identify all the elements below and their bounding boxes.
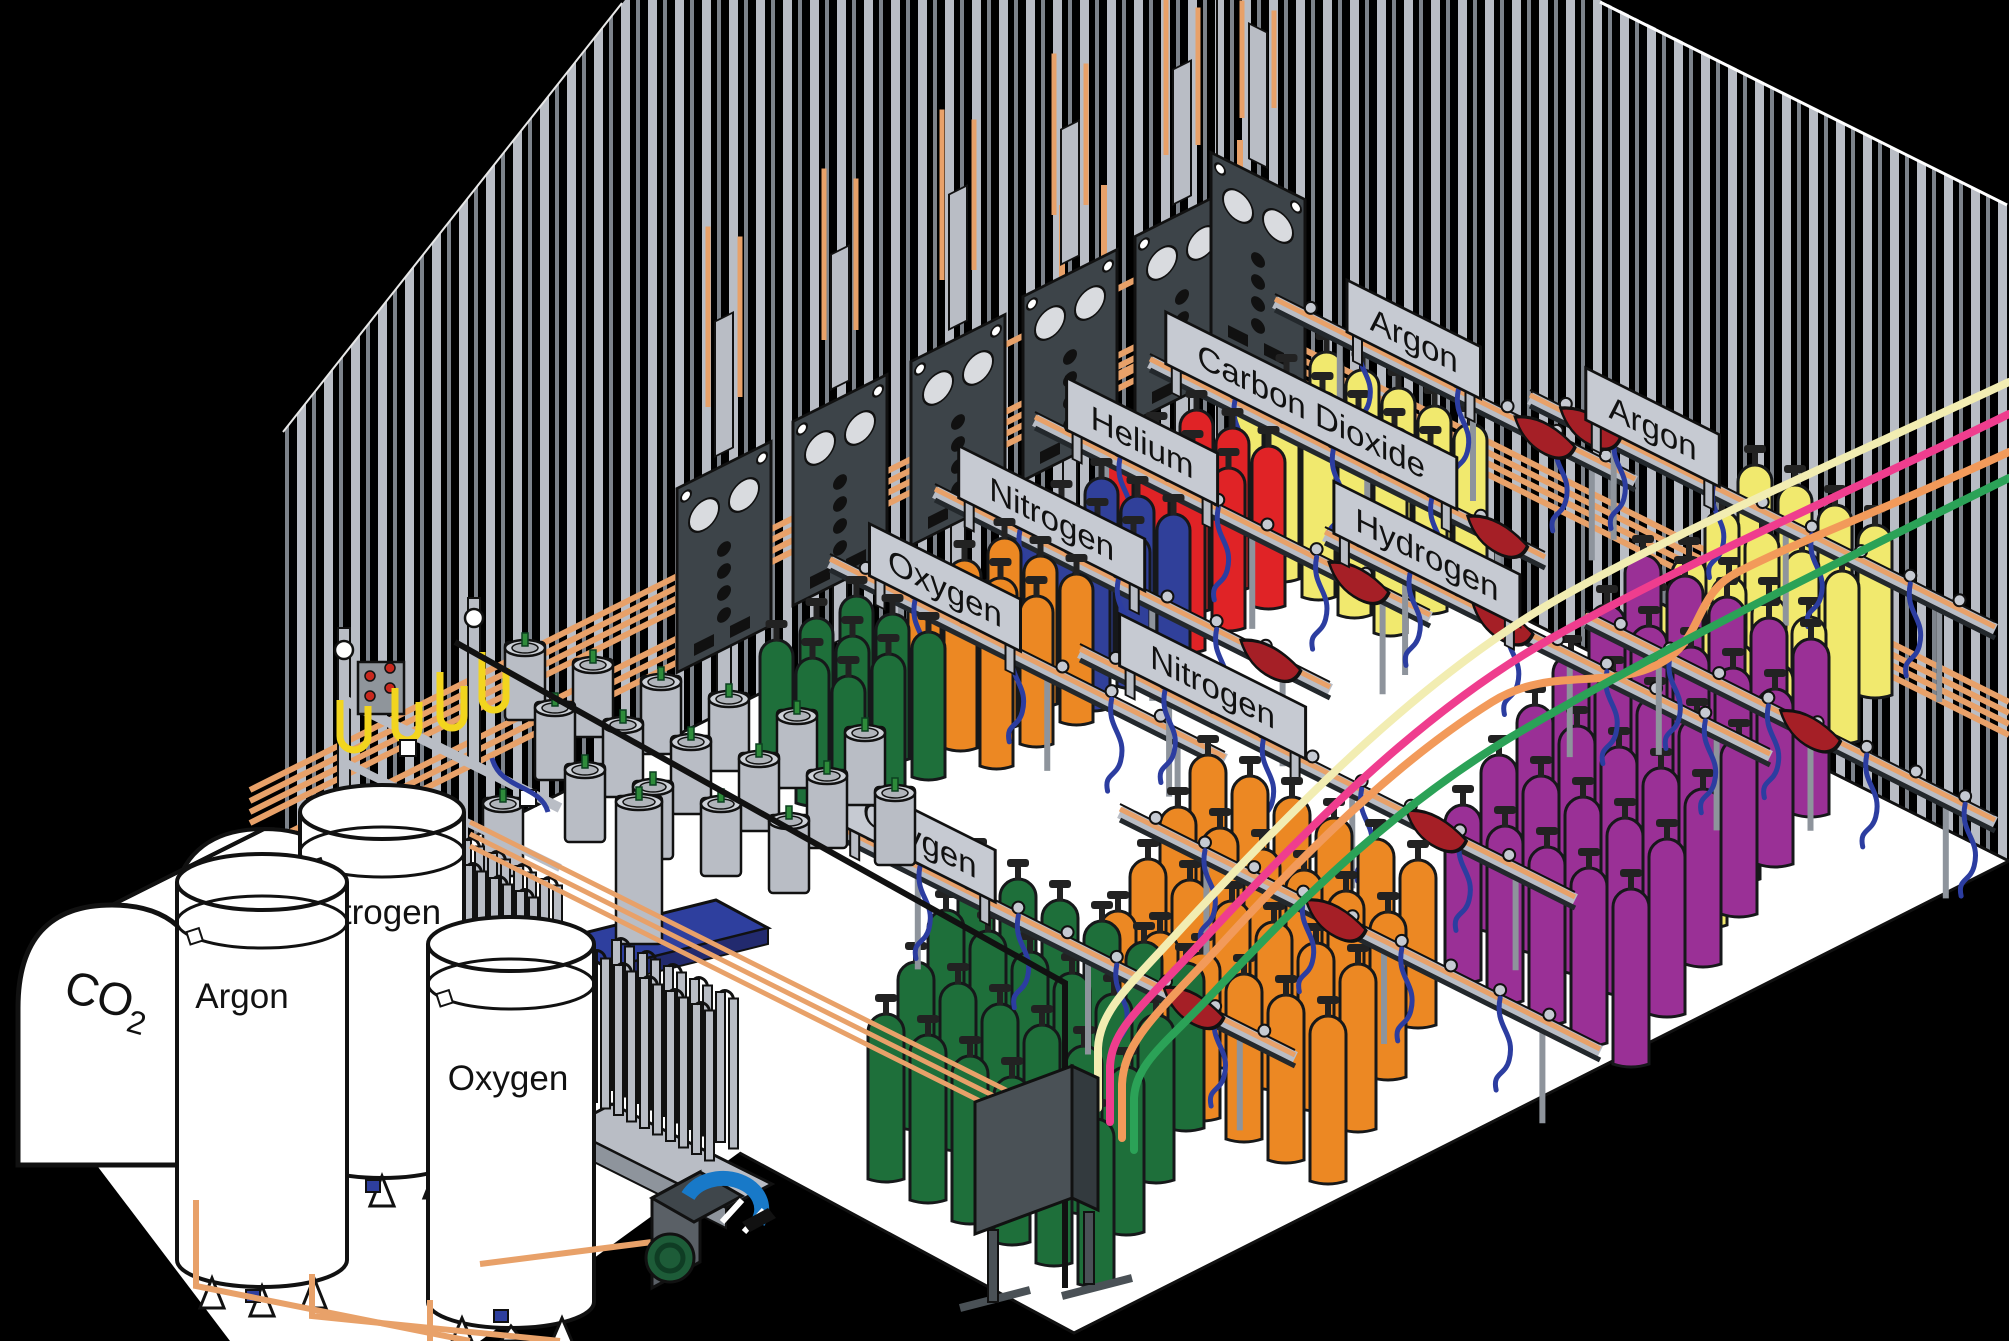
rail-hook bbox=[1713, 667, 1725, 679]
cylinder-valve bbox=[1115, 898, 1121, 912]
rail-hook bbox=[1111, 951, 1123, 963]
cylinder-valve bbox=[1686, 544, 1692, 558]
button bbox=[365, 691, 375, 701]
cylinder-valve bbox=[1230, 415, 1236, 429]
cylinder-valve bbox=[1355, 951, 1361, 965]
cylinder-valve bbox=[1074, 561, 1080, 575]
gas-cylinder bbox=[1310, 1016, 1346, 1184]
cylinder-valve bbox=[1226, 455, 1232, 469]
cylinder-valve bbox=[854, 583, 860, 597]
gas-cylinder bbox=[868, 1014, 904, 1182]
cylinder-valve bbox=[1069, 960, 1075, 974]
cylinder-valve bbox=[1099, 465, 1105, 479]
cylinder-valve bbox=[1229, 888, 1235, 902]
dewar-vessel bbox=[875, 778, 915, 865]
dewar-valve bbox=[522, 633, 528, 646]
cylinder-valve bbox=[943, 897, 949, 911]
cylinder-valve bbox=[1724, 584, 1730, 598]
tank-valve bbox=[494, 1310, 508, 1322]
dewar-valve bbox=[786, 806, 792, 819]
rail-hook bbox=[1396, 935, 1408, 947]
cylinder-valve bbox=[1247, 763, 1253, 777]
cylinder-valve bbox=[846, 663, 852, 677]
cylinder-valve bbox=[1664, 826, 1670, 840]
cylinder-valve bbox=[890, 601, 896, 615]
cylinder-valve bbox=[1135, 483, 1141, 497]
rail-hook bbox=[1248, 861, 1260, 873]
cylinder-valve bbox=[1730, 655, 1736, 669]
rail-hook bbox=[1904, 570, 1916, 582]
gas-cylinder bbox=[1226, 974, 1262, 1142]
cylinder-valve bbox=[1532, 692, 1538, 706]
cylinder-valve bbox=[1266, 433, 1272, 447]
pressure-gauge bbox=[335, 641, 353, 659]
dewar-valve bbox=[636, 787, 642, 800]
cylinder-valve bbox=[1396, 375, 1402, 389]
dewar-valve bbox=[688, 727, 694, 740]
cylinder-valve bbox=[962, 547, 968, 561]
cylinder-valve bbox=[926, 619, 932, 633]
dewar-valve bbox=[620, 710, 626, 723]
rail-hook bbox=[1861, 741, 1873, 753]
dewar-valve bbox=[582, 755, 588, 768]
rail-hook bbox=[1494, 984, 1506, 996]
dewar-valve bbox=[658, 667, 664, 680]
rail-hook bbox=[1445, 959, 1457, 971]
dewar-valve bbox=[650, 772, 656, 785]
cylinder-valve bbox=[1502, 813, 1508, 827]
rail-hook bbox=[1806, 521, 1818, 533]
cylinder-valve bbox=[1194, 397, 1200, 411]
cylinder-valve bbox=[1432, 393, 1438, 407]
button bbox=[385, 663, 395, 673]
button bbox=[365, 671, 375, 681]
gas-cylinder bbox=[1649, 839, 1685, 1017]
tank-label-oxygen: Oxygen bbox=[448, 1059, 569, 1098]
rail-hook bbox=[1261, 519, 1273, 531]
gas-cylinder bbox=[1613, 889, 1649, 1067]
cylinder-valve bbox=[1586, 855, 1592, 869]
cylinder-valve bbox=[1027, 939, 1033, 953]
rail-hook bbox=[1199, 836, 1211, 848]
gas-cylinder bbox=[910, 1035, 946, 1203]
rail-hook bbox=[1543, 1009, 1555, 1021]
cylinder-valve bbox=[1343, 878, 1349, 892]
cylinder-valve bbox=[883, 1001, 889, 1015]
cylinder-valve bbox=[814, 605, 820, 619]
rail-hook bbox=[1311, 543, 1323, 555]
cylinder-valve bbox=[1622, 805, 1628, 819]
cylinder-valve bbox=[774, 627, 780, 641]
dewar-valve bbox=[862, 718, 868, 731]
cylinder-valve bbox=[1538, 763, 1544, 777]
rail-hook bbox=[1106, 685, 1118, 697]
cylinder-valve bbox=[850, 623, 856, 637]
cylinder-valve bbox=[1141, 929, 1147, 943]
cylinder-valve bbox=[967, 1043, 973, 1057]
rail-hook bbox=[1615, 618, 1627, 630]
cylinder-valve bbox=[997, 991, 1003, 1005]
cylinder-valve bbox=[925, 1022, 931, 1036]
cylinder-valve bbox=[1205, 742, 1211, 756]
rail-hook bbox=[1699, 707, 1711, 719]
cylinder-valve bbox=[1038, 543, 1044, 557]
rail-hook bbox=[1305, 302, 1317, 314]
cylinder-valve bbox=[1171, 501, 1177, 515]
cylinder-valve bbox=[1460, 792, 1466, 806]
gas-cylinder bbox=[912, 632, 945, 780]
rail-hook bbox=[1306, 750, 1318, 762]
rail-hook bbox=[1211, 615, 1223, 627]
dewar-vessel bbox=[565, 755, 605, 842]
tank-label-argon: Argon bbox=[195, 977, 288, 1016]
rail-hook bbox=[1150, 812, 1162, 824]
dewar-valve bbox=[892, 778, 898, 791]
gas-cylinder bbox=[1721, 739, 1757, 917]
cylinder-valve bbox=[1175, 794, 1181, 808]
dewar-vessel bbox=[807, 761, 847, 848]
cylinder-valve bbox=[1766, 605, 1772, 619]
cylinder-valve bbox=[1325, 1003, 1331, 1017]
cylinder-valve bbox=[1157, 919, 1163, 933]
tank-valve bbox=[366, 1180, 380, 1192]
cylinder-valve bbox=[1034, 583, 1040, 597]
pressure-gauge bbox=[465, 609, 483, 627]
rail-hook bbox=[1012, 902, 1024, 914]
cylinder-valve bbox=[1283, 982, 1289, 996]
rail-hook bbox=[1959, 790, 1971, 802]
cylinder-valve bbox=[810, 645, 816, 659]
rail-hook bbox=[1503, 849, 1515, 861]
cylinder-valve bbox=[1772, 676, 1778, 690]
dewar-valve bbox=[794, 701, 800, 714]
rail-hook bbox=[1161, 591, 1173, 603]
cylinder-valve bbox=[1628, 876, 1634, 890]
cylinder-valve bbox=[1289, 784, 1295, 798]
cylinder-valve bbox=[1658, 755, 1664, 769]
rail-hook bbox=[1601, 658, 1613, 670]
cylinder-valve bbox=[1415, 847, 1421, 861]
cylinder-valve bbox=[886, 641, 892, 655]
cylinder-valve bbox=[1015, 866, 1021, 880]
cylinder-valve bbox=[1145, 846, 1151, 860]
cylinder-valve bbox=[1808, 626, 1814, 640]
cylinder-valve bbox=[1002, 525, 1008, 539]
cylinder-valve bbox=[1039, 1012, 1045, 1026]
cylinder-valve bbox=[1646, 613, 1652, 627]
storage-tank-oxygen: Oxygen bbox=[428, 917, 594, 1341]
dewar-valve bbox=[500, 789, 506, 802]
cylinder-valve bbox=[1574, 713, 1580, 727]
cylinder-valve bbox=[1217, 815, 1223, 829]
rail-hook bbox=[1062, 926, 1074, 938]
cylinder-valve bbox=[1700, 776, 1706, 790]
dewar-valve bbox=[726, 684, 732, 697]
gas-plant-illustration: ArgonCarbon DioxideHeliumNitrogenOxygenA… bbox=[0, 0, 2009, 1341]
rail-hook bbox=[1502, 400, 1514, 412]
cylinder-valve bbox=[955, 970, 961, 984]
cylinder-valve bbox=[1099, 908, 1105, 922]
cylinder-valve bbox=[1187, 867, 1193, 881]
rail-hook bbox=[1056, 661, 1068, 673]
cylinder-valve bbox=[1057, 887, 1063, 901]
rail-hook bbox=[1258, 1025, 1270, 1037]
cylinder-valve bbox=[1544, 834, 1550, 848]
cylinder-valve bbox=[1009, 1064, 1015, 1078]
gas-cylinder bbox=[1268, 995, 1304, 1163]
rail-hook bbox=[1910, 765, 1922, 777]
dewar-valve bbox=[824, 761, 830, 774]
rail-hook bbox=[1762, 692, 1774, 704]
cylinder-valve bbox=[1385, 899, 1391, 913]
cylinder-valve bbox=[1271, 909, 1277, 923]
dewar-vessel bbox=[701, 789, 741, 876]
cylinder-valve bbox=[1752, 452, 1758, 466]
rail-hook bbox=[1954, 594, 1966, 606]
dewar-valve bbox=[756, 744, 762, 757]
dewar-valve bbox=[590, 650, 596, 663]
cylinder-valve bbox=[1324, 339, 1330, 353]
cylinder-valve bbox=[998, 565, 1004, 579]
cylinder-valve bbox=[1580, 784, 1586, 798]
storage-tank-argon: Argon bbox=[177, 854, 347, 1316]
